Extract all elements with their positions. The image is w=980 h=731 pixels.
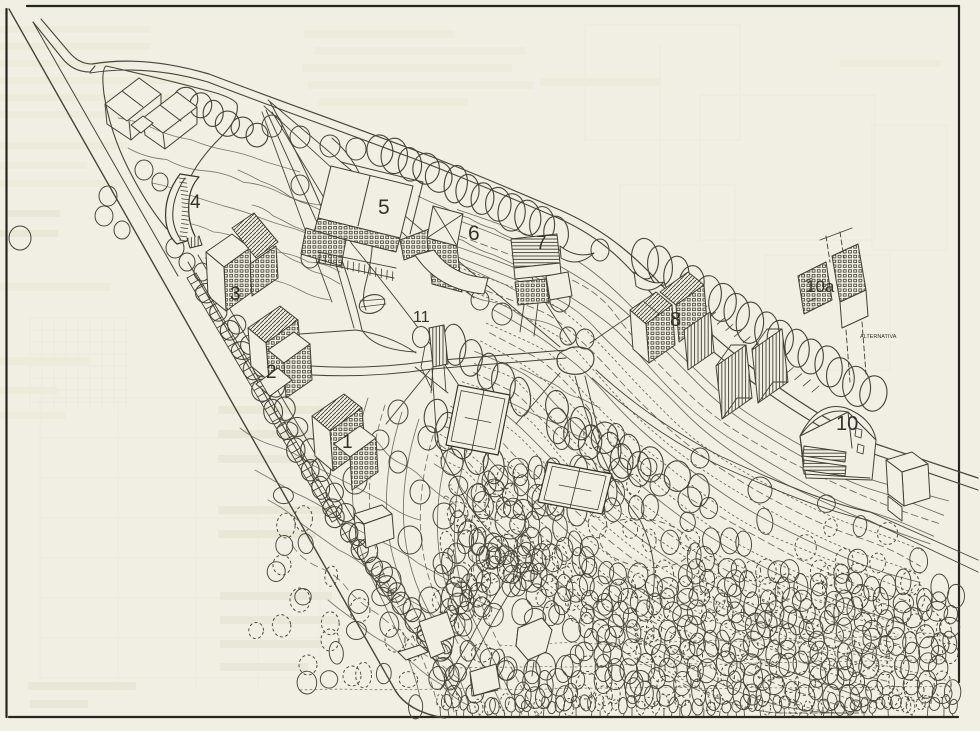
svg-text:4: 4 (190, 192, 201, 213)
svg-text:10: 10 (836, 413, 858, 435)
svg-text:2: 2 (266, 362, 277, 383)
svg-text:3: 3 (230, 284, 241, 305)
svg-text:7: 7 (536, 233, 547, 254)
svg-text:8: 8 (670, 309, 681, 331)
svg-text:ALTERNATIVA: ALTERNATIVA (860, 334, 897, 340)
svg-text:5: 5 (378, 196, 390, 219)
svg-text:1: 1 (342, 432, 353, 453)
svg-text:6: 6 (468, 222, 480, 245)
svg-text:10a: 10a (806, 277, 835, 296)
svg-text:11: 11 (413, 309, 430, 326)
